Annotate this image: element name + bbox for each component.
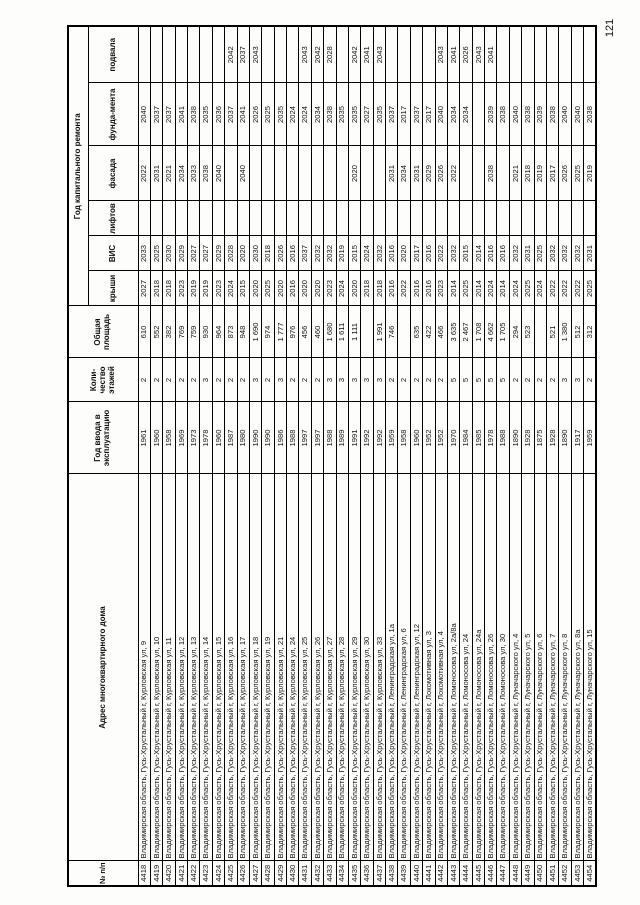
floors: 2 [150, 358, 162, 402]
table-row: 4423Владимирская область, Гусь-Хрустальн… [200, 26, 212, 886]
table-row: 4436Владимирская область, Гусь-Хрустальн… [361, 26, 373, 886]
repair-basement [497, 26, 509, 83]
repair-facade: 2034 [398, 146, 410, 201]
repair-foundation: 2037 [386, 83, 398, 146]
repair-lift [410, 201, 422, 236]
row-number: 4454 [584, 861, 597, 886]
floors: 2 [423, 358, 435, 402]
table-row: 4447Владимирская область, Гусь-Хрустальн… [497, 26, 509, 886]
area: 1 690 [249, 306, 261, 358]
repair-vis: 2022 [435, 236, 447, 271]
repair-lift [435, 201, 447, 236]
floors: 3 [571, 358, 583, 402]
repair-foundation: 2039 [485, 83, 497, 146]
area: 1 777 [274, 306, 286, 358]
repair-vis: 2031 [522, 236, 534, 271]
repair-roof: 2024 [336, 271, 348, 306]
year-built: 1997 [311, 402, 323, 474]
repair-basement [398, 26, 410, 83]
repair-lift [311, 201, 323, 236]
year-built: 1969 [175, 402, 187, 474]
table-row: 4424Владимирская область, Гусь-Хрустальн… [212, 26, 224, 886]
floors: 2 [435, 358, 447, 402]
repair-roof: 2020 [274, 271, 286, 306]
year-built: 1960 [150, 402, 162, 474]
year-built: 1984 [460, 402, 472, 474]
repair-facade: 2022 [138, 146, 150, 201]
repair-roof: 2023 [324, 271, 336, 306]
repair-facade: 2017 [546, 146, 558, 201]
repair-basement: 2028 [324, 26, 336, 83]
table-row: 4420Владимирская область, Гусь-Хрустальн… [163, 26, 175, 886]
repair-basement: 2043 [299, 26, 311, 83]
year-built: 1988 [324, 402, 336, 474]
address: Владимирская область, Гусь-Хрустальный г… [559, 474, 571, 861]
area [361, 306, 373, 358]
row-number: 4419 [150, 861, 162, 886]
area [398, 306, 410, 358]
address: Владимирская область, Гусь-Хрустальный г… [200, 474, 212, 861]
row-number: 4421 [175, 861, 187, 886]
floors: 3 [249, 358, 261, 402]
repair-facade: 2040 [212, 146, 224, 201]
address: Владимирская область, Гусь-Хрустальный г… [435, 474, 447, 861]
repair-vis: 2014 [472, 236, 484, 271]
repair-basement [584, 26, 597, 83]
repair-foundation: 2036 [212, 83, 224, 146]
repair-vis: 2020 [237, 236, 249, 271]
repair-roof: 2022 [546, 271, 558, 306]
repair-lift [336, 201, 348, 236]
repair-facade [299, 146, 311, 201]
year-built: 1960 [212, 402, 224, 474]
repair-facade [262, 146, 274, 201]
floors: 2 [212, 358, 224, 402]
year-built: 1989 [336, 402, 348, 474]
address: Владимирская область, Гусь-Хрустальный г… [423, 474, 435, 861]
row-number: 4431 [299, 861, 311, 886]
area: 769 [175, 306, 187, 358]
table-row: 4454Владимирская область, Гусь-Хрустальн… [584, 26, 597, 886]
repair-foundation: 2035 [274, 83, 286, 146]
table-row: 4427Владимирская область, Гусь-Хрустальн… [249, 26, 261, 886]
repair-basement [138, 26, 150, 83]
area: 1 111 [348, 306, 360, 358]
row-number: 4424 [212, 861, 224, 886]
year-built: 1961 [138, 402, 150, 474]
repair-basement [212, 26, 224, 83]
area: 512 [571, 306, 583, 358]
repair-foundation: 2037 [410, 83, 422, 146]
repair-foundation: 2035 [373, 83, 385, 146]
area: 1 705 [497, 306, 509, 358]
area: 456 [299, 306, 311, 358]
year-built: 1991 [348, 402, 360, 474]
repair-lift [237, 201, 249, 236]
repair-lift [460, 201, 472, 236]
floors: 3 [336, 358, 348, 402]
table-row: 4426Владимирская область, Гусь-Хрустальн… [237, 26, 249, 886]
header-repair-roof: крыши [88, 271, 138, 306]
row-number: 4439 [398, 861, 410, 886]
repair-lift [262, 201, 274, 236]
table-row: 4418Владимирская область, Гусь-Хрустальн… [138, 26, 150, 886]
repair-foundation: 2037 [150, 83, 162, 146]
repair-foundation: 2041 [175, 83, 187, 146]
row-number: 4433 [324, 861, 336, 886]
repair-vis: 2030 [249, 236, 261, 271]
table-body: 4418Владимирская область, Гусь-Хрустальн… [138, 26, 596, 886]
address: Владимирская область, Гусь-Хрустальный г… [311, 474, 323, 861]
repair-lift [361, 201, 373, 236]
repair-lift [188, 201, 200, 236]
area: 635 [410, 306, 422, 358]
repair-lift [200, 201, 212, 236]
row-number: 4450 [534, 861, 546, 886]
area: 1 708 [472, 306, 484, 358]
address: Владимирская область, Гусь-Хрустальный г… [249, 474, 261, 861]
repair-roof: 2023 [435, 271, 447, 306]
floors: 5 [460, 358, 472, 402]
repair-foundation: 2017 [398, 83, 410, 146]
address: Владимирская область, Гусь-Хрустальный г… [410, 474, 422, 861]
repair-basement [150, 26, 162, 83]
year-built: 1973 [188, 402, 200, 474]
repair-vis: 2017 [410, 236, 422, 271]
repair-facade [361, 146, 373, 201]
repair-foundation: 2038 [546, 83, 558, 146]
year-built: 1928 [522, 402, 534, 474]
repair-vis: 2032 [373, 236, 385, 271]
year-built: 1928 [546, 402, 558, 474]
repair-roof: 2024 [509, 271, 521, 306]
address: Владимирская область, Гусь-Хрустальный г… [324, 474, 336, 861]
header-repair-foundation: фунда-мента [88, 83, 138, 146]
repair-facade [274, 146, 286, 201]
repair-lift [175, 201, 187, 236]
address: Владимирская область, Гусь-Хрустальный г… [212, 474, 224, 861]
repair-vis: 2029 [212, 236, 224, 271]
repair-facade: 2019 [534, 146, 546, 201]
address: Владимирская область, Гусь-Хрустальный г… [497, 474, 509, 861]
year-built: 1970 [447, 402, 459, 474]
repair-foundation: 2035 [336, 83, 348, 146]
repair-foundation: 2041 [237, 83, 249, 146]
repair-facade: 2021 [163, 146, 175, 201]
repair-facade: 2033 [188, 146, 200, 201]
repair-lift [485, 201, 497, 236]
repair-lift [212, 201, 224, 236]
repair-roof: 2020 [299, 271, 311, 306]
address: Владимирская область, Гусь-Хрустальный г… [274, 474, 286, 861]
floors: 2 [509, 358, 521, 402]
repair-foundation: 2040 [571, 83, 583, 146]
row-number: 4451 [546, 861, 558, 886]
floors: 3 [274, 358, 286, 402]
repair-roof: 2025 [262, 271, 274, 306]
repair-basement [274, 26, 286, 83]
address: Владимирская область, Гусь-Хрустальный г… [485, 474, 497, 861]
repair-vis: 2016 [386, 236, 398, 271]
address: Владимирская область, Гусь-Хрустальный г… [150, 474, 162, 861]
repair-roof: 2020 [348, 271, 360, 306]
repair-vis: 2025 [150, 236, 162, 271]
repair-roof: 2027 [138, 271, 150, 306]
table-row: 4438Владимирская область, Гусь-Хрустальн… [386, 26, 398, 886]
area: 759 [188, 306, 200, 358]
repair-vis: 2020 [398, 236, 410, 271]
repair-roof: 2022 [398, 271, 410, 306]
table-row: 4441Владимирская область, Гусь-Хрустальн… [423, 26, 435, 886]
table-row: 4430Владимирская область, Гусь-Хрустальн… [287, 26, 299, 886]
row-number: 4440 [410, 861, 422, 886]
address: Владимирская область, Гусь-Хрустальный г… [571, 474, 583, 861]
address: Владимирская область, Гусь-Хрустальный г… [299, 474, 311, 861]
floors: 2 [410, 358, 422, 402]
table-row: 4432Владимирская область, Гусь-Хрустальн… [311, 26, 323, 886]
repair-facade: 2021 [509, 146, 521, 201]
repair-lift [299, 201, 311, 236]
repair-facade [287, 146, 299, 201]
repair-roof: 2018 [361, 271, 373, 306]
table-row: 4433Владимирская область, Гусь-Хрустальн… [324, 26, 336, 886]
repair-roof: 2025 [522, 271, 534, 306]
row-number: 4453 [571, 861, 583, 886]
repair-facade: 2031 [386, 146, 398, 201]
repair-basement [546, 26, 558, 83]
floors: 3 [348, 358, 360, 402]
repair-roof: 2018 [163, 271, 175, 306]
year-built: 1992 [361, 402, 373, 474]
floors: 2 [138, 358, 150, 402]
area: 873 [225, 306, 237, 358]
header-repair-group: Год капитального ремонта [68, 26, 88, 306]
floors: 2 [584, 358, 597, 402]
area: 1 611 [336, 306, 348, 358]
address: Владимирская область, Гусь-Хрустальный г… [336, 474, 348, 861]
address: Владимирская область, Гусь-Хрустальный г… [287, 474, 299, 861]
table-row: 4448Владимирская область, Гусь-Хрустальн… [509, 26, 521, 886]
repair-facade: 2038 [200, 146, 212, 201]
repair-facade [336, 146, 348, 201]
repair-foundation: 2038 [584, 83, 597, 146]
year-built: 1988 [497, 402, 509, 474]
repair-roof: 2024 [485, 271, 497, 306]
floors: 2 [386, 358, 398, 402]
area: 460 [311, 306, 323, 358]
header-repair-lift: лифтов [88, 201, 138, 236]
repair-basement: 2042 [311, 26, 323, 83]
repair-roof: 2018 [150, 271, 162, 306]
floors: 5 [447, 358, 459, 402]
repair-lift [447, 201, 459, 236]
repair-roof: 2024 [534, 271, 546, 306]
repair-basement: 2041 [447, 26, 459, 83]
floors: 5 [472, 358, 484, 402]
address: Владимирская область, Гусь-Хрустальный г… [447, 474, 459, 861]
table-row: 4444Владимирская область, Гусь-Хрустальн… [460, 26, 472, 886]
row-number: 4435 [348, 861, 360, 886]
repair-roof: 2025 [460, 271, 472, 306]
capital-repair-table: № п/п Адрес многоквартирного дома Год вв… [67, 25, 597, 887]
row-number: 4446 [485, 861, 497, 886]
row-number: 4430 [287, 861, 299, 886]
repair-lift [348, 201, 360, 236]
repair-lift [163, 201, 175, 236]
repair-lift [584, 201, 597, 236]
floors: 2 [225, 358, 237, 402]
row-number: 4423 [200, 861, 212, 886]
area: 964 [212, 306, 224, 358]
row-number: 4452 [559, 861, 571, 886]
table-row: 4450Владимирская область, Гусь-Хрустальн… [534, 26, 546, 886]
header-address: Адрес многоквартирного дома [68, 474, 138, 861]
repair-foundation: 2017 [423, 83, 435, 146]
floors: 2 [175, 358, 187, 402]
repair-basement [571, 26, 583, 83]
area: 422 [423, 306, 435, 358]
repair-facade: 2018 [522, 146, 534, 201]
repair-vis: 2033 [138, 236, 150, 271]
row-number: 4441 [423, 861, 435, 886]
header-repair-basement: подвала [88, 26, 138, 83]
repair-basement: 2026 [460, 26, 472, 83]
repair-vis: 2015 [460, 236, 472, 271]
repair-foundation: 2037 [225, 83, 237, 146]
repair-basement: 2042 [225, 26, 237, 83]
repair-facade: 2022 [447, 146, 459, 201]
rotated-table-container: № п/п Адрес многоквартирного дома Год вв… [67, 27, 597, 887]
row-number: 4436 [361, 861, 373, 886]
area: 610 [138, 306, 150, 358]
repair-foundation: 2039 [534, 83, 546, 146]
table-row: 4446Владимирская область, Гусь-Хрустальн… [485, 26, 497, 886]
floors: 2 [163, 358, 175, 402]
repair-roof: 2016 [386, 271, 398, 306]
repair-lift [509, 201, 521, 236]
repair-roof: 2020 [311, 271, 323, 306]
address: Владимирская область, Гусь-Хрустальный г… [546, 474, 558, 861]
floors: 2 [262, 358, 274, 402]
repair-roof: 2018 [373, 271, 385, 306]
repair-vis: 2018 [262, 236, 274, 271]
address: Владимирская область, Гусь-Хрустальный г… [138, 474, 150, 861]
header-repair-vis: ВИС [88, 236, 138, 271]
repair-roof: 2019 [200, 271, 212, 306]
year-built: 1890 [559, 402, 571, 474]
repair-basement [522, 26, 534, 83]
repair-vis: 2032 [447, 236, 459, 271]
repair-facade [460, 146, 472, 201]
area: 930 [200, 306, 212, 358]
repair-roof: 2015 [237, 271, 249, 306]
repair-roof: 2022 [559, 271, 571, 306]
row-number: 4437 [373, 861, 385, 886]
repair-roof: 2023 [175, 271, 187, 306]
year-built: 1959 [584, 402, 597, 474]
repair-foundation: 2024 [287, 83, 299, 146]
header-floors: Коли-чество этажей [68, 358, 138, 402]
repair-facade [373, 146, 385, 201]
repair-facade: 2025 [571, 146, 583, 201]
repair-vis: 2016 [287, 236, 299, 271]
repair-facade [225, 146, 237, 201]
row-number: 4442 [435, 861, 447, 886]
repair-facade [497, 146, 509, 201]
repair-foundation: 2037 [163, 83, 175, 146]
repair-facade: 2040 [237, 146, 249, 201]
repair-roof: 2014 [447, 271, 459, 306]
address: Владимирская область, Гусь-Хрустальный г… [175, 474, 187, 861]
repair-vis: 2029 [175, 236, 187, 271]
year-built: 1990 [249, 402, 261, 474]
repair-basement [386, 26, 398, 83]
table-row: 4443Владимирская область, Гусь-Хрустальн… [447, 26, 459, 886]
area: 382 [163, 306, 175, 358]
repair-vis: 2037 [299, 236, 311, 271]
address: Владимирская область, Гусь-Хрустальный г… [534, 474, 546, 861]
repair-lift [324, 201, 336, 236]
repair-basement [509, 26, 521, 83]
address: Владимирская область, Гусь-Хрустальный г… [163, 474, 175, 861]
repair-basement [423, 26, 435, 83]
repair-vis: 2032 [546, 236, 558, 271]
repair-lift [150, 201, 162, 236]
year-built: 1875 [534, 402, 546, 474]
repair-lift [138, 201, 150, 236]
address: Владимирская область, Гусь-Хрустальный г… [584, 474, 597, 861]
repair-basement: 2037 [237, 26, 249, 83]
repair-roof: 2016 [423, 271, 435, 306]
repair-lift [249, 201, 261, 236]
row-number: 4438 [386, 861, 398, 886]
floors: 3 [324, 358, 336, 402]
repair-facade: 2031 [150, 146, 162, 201]
area [534, 306, 546, 358]
area: 1 380 [559, 306, 571, 358]
repair-vis: 2032 [324, 236, 336, 271]
row-number: 4443 [447, 861, 459, 886]
year-built: 1985 [472, 402, 484, 474]
year-built: 1917 [571, 402, 583, 474]
floors: 2 [188, 358, 200, 402]
header-year-built: Год ввода в эксплуатацию [68, 402, 138, 474]
repair-foundation: 2038 [522, 83, 534, 146]
repair-foundation: 2038 [497, 83, 509, 146]
table-row: 4452Владимирская область, Гусь-Хрустальн… [559, 26, 571, 886]
repair-basement: 2043 [472, 26, 484, 83]
area: 746 [386, 306, 398, 358]
repair-facade [324, 146, 336, 201]
repair-lift [559, 201, 571, 236]
repair-vis: 2015 [348, 236, 360, 271]
repair-vis: 2016 [485, 236, 497, 271]
repair-vis: 2028 [225, 236, 237, 271]
row-number: 4422 [188, 861, 200, 886]
repair-basement [262, 26, 274, 83]
repair-foundation: 2040 [509, 83, 521, 146]
address: Владимирская область, Гусь-Хрустальный г… [509, 474, 521, 861]
repair-roof: 2024 [225, 271, 237, 306]
repair-lift [423, 201, 435, 236]
repair-foundation: 2034 [311, 83, 323, 146]
repair-foundation: 2035 [348, 83, 360, 146]
floors: 3 [373, 358, 385, 402]
repair-roof: 2019 [188, 271, 200, 306]
repair-roof: 2023 [212, 271, 224, 306]
row-number: 4425 [225, 861, 237, 886]
year-built: 1980 [237, 402, 249, 474]
